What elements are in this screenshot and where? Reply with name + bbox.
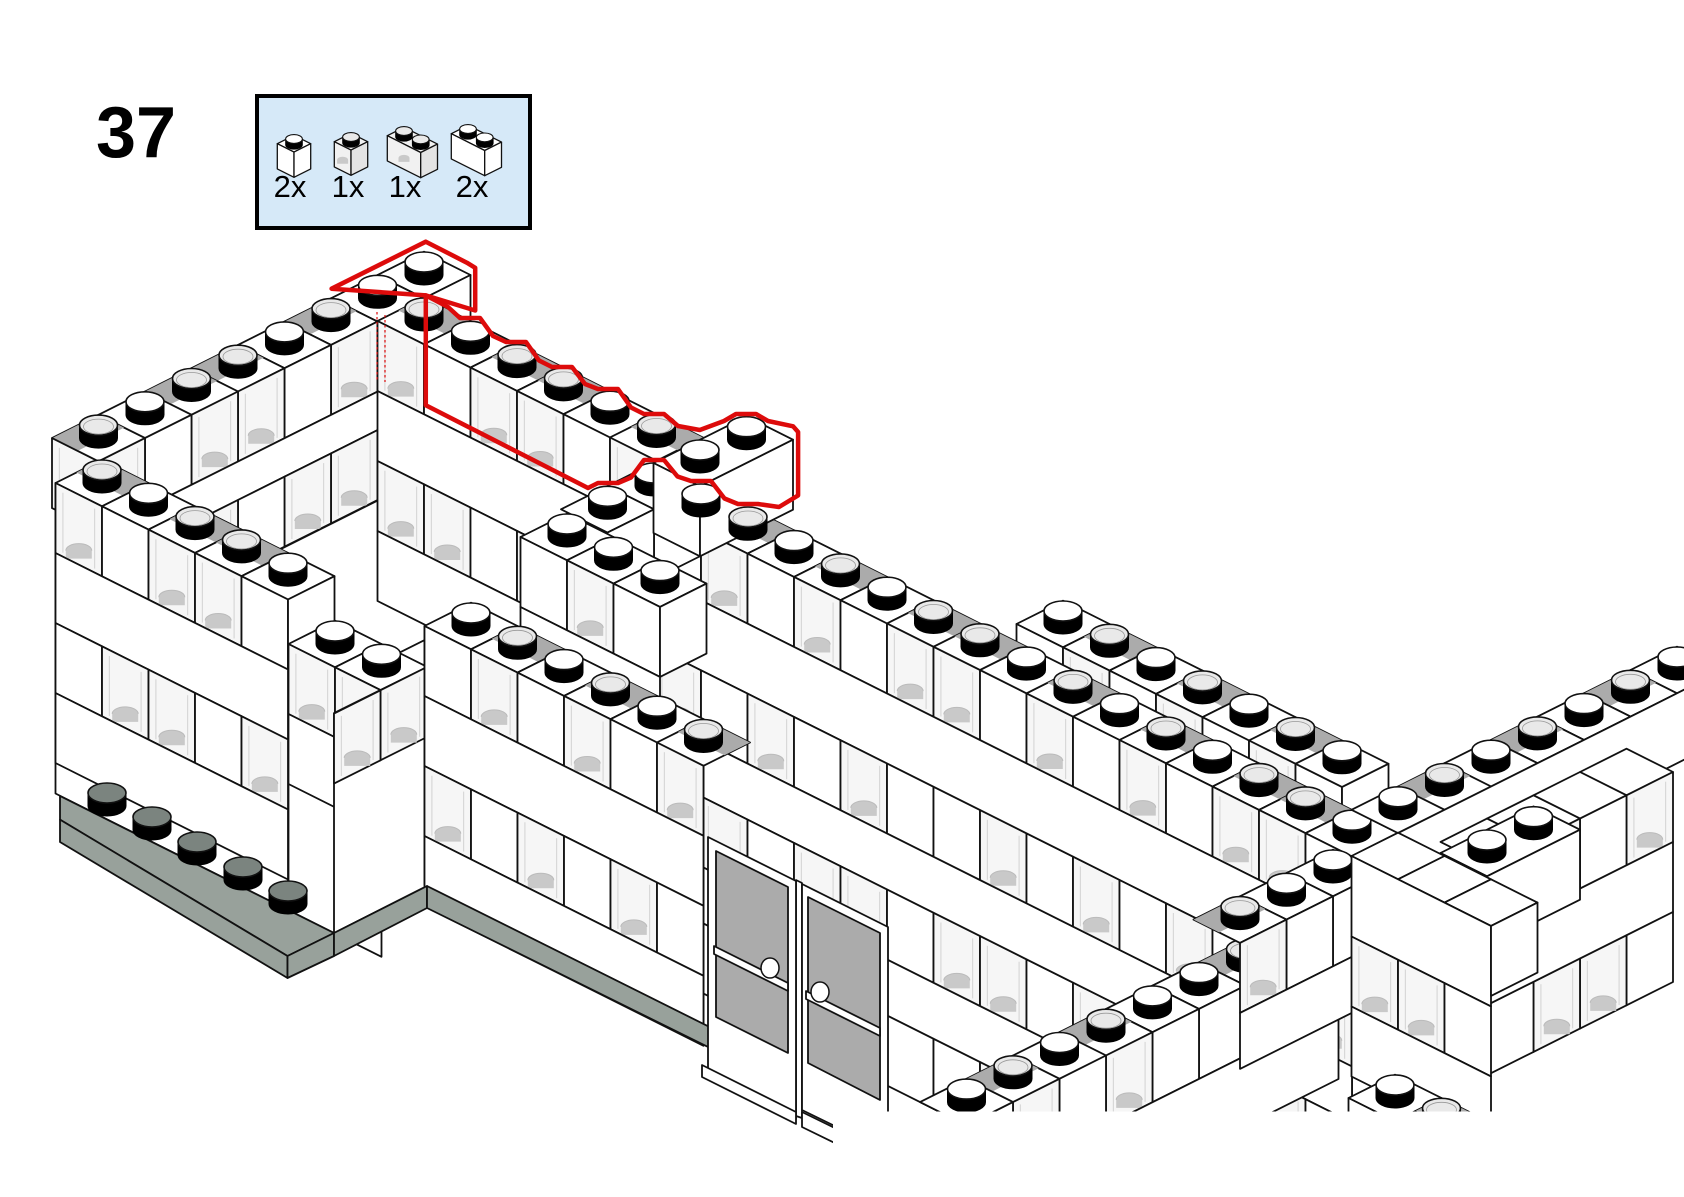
svg-text:2x: 2x (456, 169, 489, 204)
svg-text:1x: 1x (389, 169, 422, 204)
svg-text:2x: 2x (274, 169, 307, 204)
svg-text:1x: 1x (332, 169, 365, 204)
svg-text:37: 37 (96, 93, 176, 173)
